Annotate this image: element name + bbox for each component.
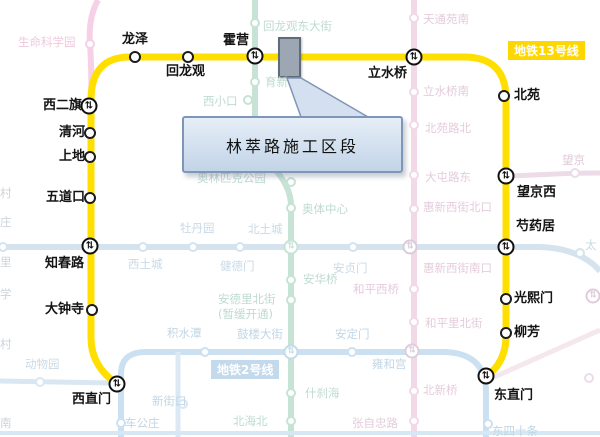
bg-station-label: 安贞门 (333, 262, 368, 275)
bg-station-label: 新街口 (152, 395, 187, 408)
bg-station-label: 东四十条 (492, 425, 538, 437)
line13-station-label: 知春路 (45, 257, 84, 272)
line13-station-label: 清河 (59, 126, 85, 141)
line13-station-label: 立水桥 (368, 67, 407, 82)
bg-station-label: 动物园 (25, 358, 60, 371)
bg-station-label: (暂缓开通) (218, 308, 273, 321)
line13-badge: 地铁13号线 (508, 41, 585, 60)
line13-station-label: 五道口 (46, 191, 85, 206)
line2-badge: 地铁2号线 (211, 360, 279, 379)
bg-station-label: 立水桥南 (423, 85, 469, 98)
bg-station-label: 庄 (0, 216, 12, 229)
bg-station-label: 牡丹园 (180, 222, 215, 235)
bg-station-label: 西土城 (128, 258, 163, 271)
line13-station-label: 上地 (59, 150, 85, 165)
bg-station-label: 雍和宫 (372, 358, 407, 371)
bg-station-label: 学 (0, 288, 12, 301)
bg-station-label: 车公庄 (125, 417, 160, 430)
bg-station-label: 生命科学园 (18, 36, 76, 49)
line13-station-label: 霍营 (223, 34, 249, 49)
bg-station-label: 鼓楼大街 (237, 328, 283, 341)
line13-station-label: 光熙门 (514, 292, 553, 307)
bg-station-label: 北土城 (248, 223, 283, 236)
line13-station-label: 东直门 (494, 389, 533, 404)
bg-station-label: 村 (0, 187, 12, 200)
bg-station-label: 回龙观东大街 (263, 20, 332, 33)
bg-station-label: 天通苑南 (423, 13, 469, 26)
line13-station-label: 西直门 (72, 393, 111, 408)
labels-layer: 回龙观东大街育新西小口奥林匹克公园奥体中心安德里北街(暂缓开通)什刹海北海北安华… (0, 0, 600, 437)
bg-station-label: 什刹海 (305, 387, 340, 400)
bg-station-label: 北海北 (233, 415, 268, 428)
line13-station-label: 望京西 (517, 186, 556, 201)
bg-station-label: 安定门 (335, 328, 370, 341)
bg-station-label: 大屯路东 (425, 171, 471, 184)
bg-station-label: 惠新西街南口 (423, 262, 492, 275)
bg-station-label: 安德里北街 (218, 293, 276, 306)
bg-station-label: 奥林匹克公园 (197, 172, 266, 185)
bg-station-label: 西小口 (203, 95, 238, 108)
bg-station-label: 和平西桥 (353, 283, 399, 296)
bg-station-label: 积水潭 (167, 327, 202, 340)
bg-station-label: 奥体中心 (302, 203, 348, 216)
bg-station-label: 张自忠路 (352, 417, 398, 430)
bg-station-label: 健德门 (220, 260, 255, 273)
bg-station-label: 惠新西街北口 (423, 201, 492, 214)
bg-station-label: 里 (0, 256, 12, 269)
line13-station-label: 龙泽 (122, 33, 148, 48)
bg-station-label: 北新桥 (423, 384, 458, 397)
line13-station-label: 柳芳 (514, 326, 540, 341)
construction-callout-text: 林萃路施工区段 (226, 133, 359, 157)
line13-station-label: 芍药居 (516, 220, 555, 235)
beijing-metro-line13-map: ⇅⇅⇅⇅⇅⇅⇅⇅⇅⇅⇅⇅⇅ 回龙观东大街育新西小口奥林匹克公园奥体中心安德里北街… (0, 0, 600, 437)
line13-station-label: 西二旗 (43, 99, 82, 114)
bg-station-label: 和平里北街 (425, 317, 483, 330)
bg-station-label: 北苑路北 (425, 122, 471, 135)
bg-station-label: 育新 (265, 76, 288, 89)
line13-station-label: 北苑 (514, 89, 540, 104)
line13-station-label: 回龙观 (166, 65, 205, 80)
construction-callout: 林萃路施工区段 (182, 116, 403, 173)
line13-station-label: 大钟寺 (45, 303, 84, 318)
bg-station-label: 望京 (562, 154, 585, 167)
bg-station-label: 村 (0, 338, 12, 351)
bg-station-label: 太 (585, 239, 597, 252)
bg-station-label: 南 (0, 417, 12, 430)
